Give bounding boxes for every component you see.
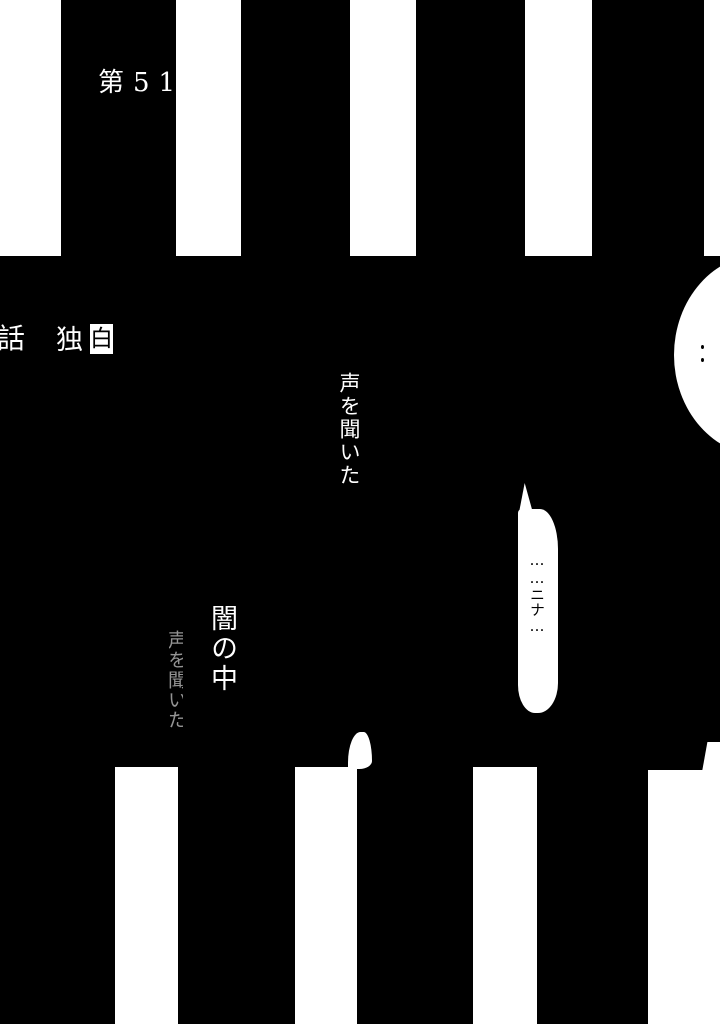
manga-page: 第51 話 独 白 声を聞いた 闇の中 声を聞いた ……ニナ… — [0, 0, 720, 1024]
top-black-stripe-2 — [241, 0, 350, 256]
bottom-white-stripe-1 — [115, 767, 178, 1024]
chapter-suffix: 話 — [0, 317, 25, 357]
bottom-white-stripe-4 — [648, 770, 720, 1024]
bottom-stripe-corner-wedge — [702, 742, 720, 772]
top-black-stripe-1 — [61, 0, 176, 256]
narration-text-2: 闇の中 — [202, 604, 241, 704]
right-bubble-dot — [701, 345, 704, 349]
top-black-stripe-4 — [592, 0, 704, 256]
narration-text-3-clipped: 声を聞いた — [169, 630, 183, 742]
chapter-number: 第51 — [98, 62, 178, 99]
chapter-title-char-2: 白 — [90, 328, 113, 351]
bottom-white-stripe-3 — [473, 767, 537, 1024]
highlight-teardrop — [348, 732, 372, 769]
chapter-title-box: 白 — [90, 324, 113, 354]
speech-bubble: ……ニナ… — [518, 509, 558, 713]
right-edge-bubble — [674, 254, 720, 456]
narration-text-3: 声を聞いた — [169, 630, 183, 730]
narration-text-1: 声を聞いた — [334, 372, 364, 482]
top-black-stripe-3 — [416, 0, 525, 256]
bottom-white-stripe-2 — [295, 767, 357, 1024]
chapter-title-char-1: 独 — [56, 318, 83, 357]
speech-bubble-text: ……ニナ… — [529, 551, 544, 635]
right-bubble-dot — [701, 358, 704, 362]
top-panel-band — [0, 0, 720, 256]
